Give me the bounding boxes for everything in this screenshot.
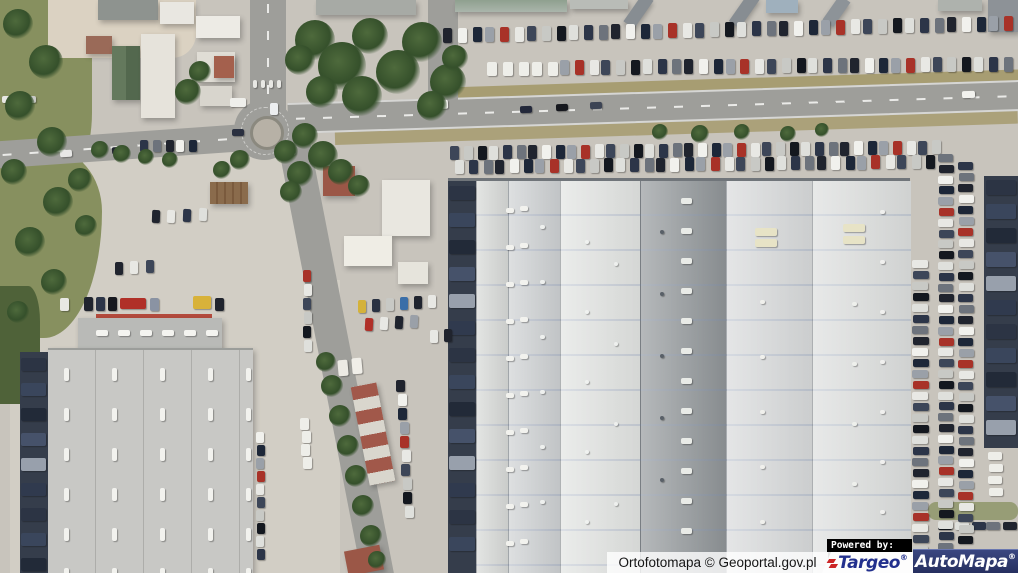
parked-car: [581, 145, 590, 159]
map-attribution: Ortofotomapa © Geoportal.gov.pl: [607, 552, 828, 573]
parked-car: [398, 394, 407, 406]
vehicle: [120, 298, 146, 309]
parked-car: [725, 157, 734, 171]
roof-skylight: [64, 488, 69, 501]
parked-car: [189, 140, 197, 152]
parked-car: [972, 522, 986, 530]
truck-trailer: [449, 537, 475, 551]
parked-car: [304, 284, 312, 296]
vehicle: [193, 296, 211, 309]
parked-car: [912, 480, 928, 488]
roof-skylight: [160, 488, 165, 501]
roof-skylight: [760, 465, 765, 469]
roof-skylight: [755, 239, 777, 247]
tree: [213, 161, 231, 179]
parked-car: [256, 484, 264, 495]
truck-trailer: [21, 408, 46, 421]
parked-car: [616, 158, 625, 172]
truck-trailer: [986, 180, 1016, 195]
tree: [734, 124, 750, 140]
parked-car: [938, 327, 953, 335]
parked-car: [402, 450, 411, 462]
roof-skylight: [660, 354, 664, 358]
roof-skylight: [852, 482, 857, 486]
parked-car: [710, 22, 719, 37]
parked-car: [673, 143, 682, 157]
parked-car: [301, 444, 310, 456]
automapa-logo-text: AutoMapa: [915, 552, 1008, 572]
parked-car: [684, 59, 693, 74]
tree: [691, 125, 709, 143]
roof-skylight: [880, 510, 885, 514]
roof-skylight: [277, 80, 281, 88]
roof-skylight: [760, 410, 765, 414]
tree: [15, 227, 45, 257]
parked-car: [893, 18, 902, 33]
tree: [329, 405, 351, 427]
parked-car: [503, 62, 513, 76]
vehicle: [380, 317, 389, 330]
roof-skylight: [96, 330, 108, 336]
parked-car: [791, 156, 800, 170]
parked-car: [762, 142, 771, 156]
parked-car: [256, 536, 264, 547]
parked-car: [912, 458, 928, 466]
truck-trailer: [986, 348, 1016, 363]
parked-car: [857, 156, 866, 170]
parked-car: [912, 502, 928, 510]
vehicle: [410, 315, 419, 328]
map-details-layer: [0, 0, 1018, 573]
parked-car: [879, 141, 888, 155]
tree: [1, 159, 27, 185]
parked-car: [737, 143, 746, 157]
roof-skylight: [880, 210, 885, 214]
parked-car: [714, 59, 723, 74]
parked-car: [912, 282, 928, 290]
parked-car: [986, 522, 1000, 530]
parked-car: [939, 489, 954, 497]
targeo-logo-icon: [827, 557, 837, 569]
tree: [91, 141, 109, 159]
tree: [348, 175, 370, 197]
truck-trailer: [21, 383, 46, 396]
parked-car: [400, 436, 409, 448]
vehicle: [108, 297, 117, 311]
tree: [37, 127, 67, 157]
parked-car: [517, 145, 526, 159]
parked-car: [912, 524, 928, 532]
roof-skylight: [520, 391, 528, 396]
roof-skylight: [585, 310, 589, 314]
parked-car: [863, 19, 872, 34]
roof-skylight: [681, 258, 692, 264]
parked-car: [958, 360, 973, 368]
parked-car: [905, 18, 914, 33]
parked-car: [611, 24, 620, 39]
roof-skylight: [246, 368, 251, 381]
parked-car: [645, 144, 654, 158]
parked-car: [959, 327, 974, 335]
tree: [352, 495, 374, 517]
parked-car: [751, 143, 760, 157]
parked-car: [300, 418, 309, 430]
vehicle: [215, 298, 224, 311]
roof-skylight: [112, 488, 117, 501]
roof-skylight: [140, 330, 152, 336]
parked-car: [515, 27, 524, 42]
parked-car: [938, 284, 953, 292]
parked-car: [938, 478, 953, 486]
tree: [442, 45, 468, 71]
parked-car: [939, 165, 954, 173]
parked-car: [736, 157, 745, 171]
truck-trailer: [986, 252, 1016, 267]
tree: [368, 551, 386, 569]
roof-skylight: [112, 368, 117, 381]
parked-car: [938, 154, 953, 162]
parked-car: [668, 23, 677, 38]
roof-skylight: [520, 354, 528, 359]
vehicle: [167, 210, 175, 223]
truck-trailer: [449, 267, 475, 281]
parked-car: [939, 294, 954, 302]
truck-trailer: [21, 358, 46, 371]
attribution-text: Ortofotomapa © Geoportal.gov.pl: [618, 555, 816, 570]
tree: [5, 91, 35, 121]
truck-trailer: [449, 402, 475, 416]
tree: [352, 18, 388, 54]
parked-car: [959, 305, 974, 313]
parked-car: [913, 315, 929, 323]
parked-car: [938, 219, 953, 227]
parked-car: [765, 157, 774, 171]
parked-car: [176, 140, 184, 152]
parked-car: [938, 370, 953, 378]
parked-car: [303, 270, 311, 282]
parked-car: [958, 206, 973, 214]
aerial-map-canvas[interactable]: Ortofotomapa © Geoportal.gov.pl Powered …: [0, 0, 1018, 573]
vehicle: [351, 358, 362, 375]
parked-car: [891, 58, 900, 73]
parked-car: [958, 536, 973, 544]
parked-car: [912, 304, 928, 312]
parked-car: [658, 59, 667, 74]
parked-car: [912, 370, 928, 378]
truck-trailer: [449, 510, 475, 524]
roof-skylight: [64, 408, 69, 421]
parked-car: [535, 159, 544, 173]
parked-car: [257, 497, 265, 508]
parked-car: [989, 488, 1003, 496]
vehicle: [358, 300, 366, 313]
parked-car: [398, 408, 407, 420]
parked-car: [958, 162, 973, 170]
parked-car: [912, 348, 928, 356]
parked-car: [685, 157, 694, 171]
tree: [43, 187, 73, 217]
powered-by-label: Powered by:: [827, 539, 912, 552]
vehicle: [230, 98, 246, 107]
roof-skylight: [660, 292, 664, 296]
parked-car: [959, 195, 974, 203]
parked-car: [1004, 16, 1013, 31]
parked-car: [653, 24, 662, 39]
vehicle: [590, 102, 602, 109]
roof-skylight: [852, 422, 857, 426]
parked-car: [959, 415, 974, 423]
vehicle: [365, 318, 374, 331]
vehicle: [337, 360, 348, 377]
parked-car: [938, 197, 953, 205]
parked-car: [590, 60, 599, 75]
parked-car: [939, 273, 954, 281]
parked-car: [153, 140, 161, 152]
roof-skylight: [506, 504, 514, 509]
parked-car: [974, 57, 983, 72]
parked-car: [478, 146, 487, 160]
parked-car: [959, 393, 974, 401]
parked-car: [683, 23, 692, 38]
tree: [189, 61, 211, 83]
roof-skylight: [506, 245, 514, 250]
roof-skylight: [540, 390, 545, 394]
parked-car: [256, 432, 264, 443]
parked-car: [938, 500, 953, 508]
parked-car: [740, 59, 749, 74]
parked-car: [641, 24, 650, 39]
roof-skylight: [760, 355, 765, 359]
parked-car: [606, 144, 615, 158]
parked-car: [450, 146, 459, 160]
parked-car: [893, 141, 902, 155]
tree: [41, 269, 67, 295]
roof-skylight: [614, 262, 618, 266]
roof-skylight: [585, 380, 589, 384]
truck-trailer: [449, 294, 475, 308]
roof-skylight: [852, 362, 857, 366]
parked-car: [464, 146, 473, 160]
parked-car: [868, 141, 877, 155]
parked-car: [959, 261, 974, 269]
roof-skylight: [520, 502, 528, 507]
roof-skylight: [520, 243, 528, 248]
roof-skylight: [506, 282, 514, 287]
roof-skylight: [681, 498, 692, 504]
roof-skylight: [880, 360, 885, 364]
roof-skylight: [246, 408, 251, 421]
parked-car: [989, 16, 998, 31]
roof-skylight: [208, 368, 213, 381]
vehicle: [400, 297, 408, 310]
parked-car: [817, 156, 826, 170]
parked-car: [913, 513, 929, 521]
parked-car: [500, 27, 509, 42]
parked-car: [913, 447, 929, 455]
parked-car: [938, 176, 953, 184]
parked-car: [939, 251, 954, 259]
vehicle: [414, 296, 422, 309]
roof-skylight: [112, 528, 117, 541]
roof-skylight: [614, 342, 618, 346]
roof-skylight: [681, 198, 692, 204]
parked-car: [484, 160, 493, 174]
parked-car: [935, 18, 944, 33]
roof-skylight: [880, 410, 885, 414]
parked-car: [959, 371, 974, 379]
vehicle: [115, 262, 123, 275]
roof-skylight: [880, 310, 885, 314]
parked-car: [959, 459, 974, 467]
tree: [780, 126, 796, 142]
parked-car: [958, 448, 973, 456]
parked-car: [575, 60, 584, 75]
parked-car: [620, 144, 629, 158]
tree: [402, 22, 442, 62]
parked-car: [737, 22, 746, 37]
roof-skylight: [540, 445, 545, 449]
parked-car: [473, 27, 482, 42]
parked-car: [527, 26, 536, 41]
parked-car: [939, 467, 954, 475]
parked-car: [503, 145, 512, 159]
parked-car: [443, 28, 452, 43]
parked-car: [938, 240, 953, 248]
parked-car: [977, 17, 986, 32]
vehicle: [96, 297, 105, 311]
tree: [285, 45, 315, 75]
roof-skylight: [160, 528, 165, 541]
tree: [274, 140, 298, 164]
parked-car: [485, 27, 494, 42]
tree: [3, 9, 33, 39]
parked-car: [560, 60, 569, 75]
parked-car: [405, 506, 414, 518]
parked-car: [542, 26, 551, 41]
roof-skylight: [208, 528, 213, 541]
parked-car: [556, 145, 565, 159]
roof-skylight: [520, 428, 528, 433]
roof-skylight: [160, 408, 165, 421]
parked-car: [962, 17, 971, 32]
parked-car: [988, 476, 1002, 484]
roof-skylight: [246, 448, 251, 461]
parked-car: [939, 510, 954, 518]
parked-car: [790, 142, 799, 156]
tree: [68, 168, 92, 192]
roof-skylight: [681, 408, 692, 414]
parked-car: [801, 142, 810, 156]
parked-car: [939, 230, 954, 238]
parked-car: [851, 19, 860, 34]
parked-car: [939, 402, 954, 410]
roof-skylight: [506, 430, 514, 435]
parked-car: [913, 271, 929, 279]
parked-car: [779, 21, 788, 36]
parked-car: [938, 262, 953, 270]
parked-car: [548, 62, 558, 76]
roof-skylight: [585, 450, 589, 454]
truck-trailer: [986, 204, 1016, 219]
parked-car: [256, 510, 264, 521]
vehicle: [386, 298, 394, 311]
automapa-logo[interactable]: AutoMapa ®: [913, 549, 1018, 573]
parked-car: [1004, 57, 1013, 72]
roof-skylight: [64, 568, 69, 573]
parked-car: [938, 305, 953, 313]
tree: [815, 123, 829, 137]
parked-car: [878, 19, 887, 34]
parked-car: [962, 57, 971, 72]
parked-car: [645, 158, 654, 172]
truck-trailer: [986, 300, 1016, 315]
parked-car: [939, 186, 954, 194]
roof-skylight: [506, 467, 514, 472]
roof-skylight: [681, 348, 692, 354]
tree: [417, 91, 447, 121]
roof-skylight: [852, 302, 857, 306]
vehicle: [130, 261, 138, 274]
targeo-logo[interactable]: Targeo ®: [822, 552, 913, 573]
roof-skylight: [64, 368, 69, 381]
roof-skylight: [112, 408, 117, 421]
parked-car: [519, 62, 529, 76]
parked-car: [303, 326, 311, 338]
parked-car: [913, 293, 929, 301]
parked-car: [767, 21, 776, 36]
roof-skylight: [880, 460, 885, 464]
parked-car: [670, 158, 679, 172]
parked-car: [767, 59, 776, 74]
roof-skylight: [112, 448, 117, 461]
truck-trailer: [21, 458, 46, 471]
parked-car: [939, 381, 954, 389]
parked-car: [564, 159, 573, 173]
truck-trailer: [986, 396, 1016, 411]
parked-car: [913, 491, 929, 499]
parked-car: [912, 414, 928, 422]
roof-skylight: [246, 488, 251, 501]
parked-car: [696, 157, 705, 171]
roof-skylight: [660, 230, 664, 234]
registered-trademark-icon: ®: [900, 553, 908, 562]
parked-car: [304, 340, 312, 352]
parked-car: [524, 159, 533, 173]
tree: [175, 79, 201, 105]
roof-skylight: [540, 335, 545, 339]
roof-skylight: [540, 225, 545, 229]
roof-skylight: [261, 80, 265, 88]
tree: [75, 215, 97, 237]
truck-trailer: [986, 420, 1016, 435]
roof-skylight: [246, 528, 251, 541]
parked-car: [939, 424, 954, 432]
parked-car: [684, 143, 693, 157]
roof-skylight: [520, 280, 528, 285]
tree: [316, 352, 336, 372]
roof-skylight: [184, 330, 196, 336]
parked-car: [782, 58, 791, 73]
parked-car: [815, 142, 824, 156]
parked-car: [958, 470, 973, 478]
parked-car: [303, 457, 312, 469]
roof-skylight: [506, 208, 514, 213]
parked-car: [959, 283, 974, 291]
tree: [138, 149, 154, 165]
parked-car: [958, 184, 973, 192]
truck-trailer: [986, 276, 1016, 291]
roof-skylight: [585, 520, 589, 524]
